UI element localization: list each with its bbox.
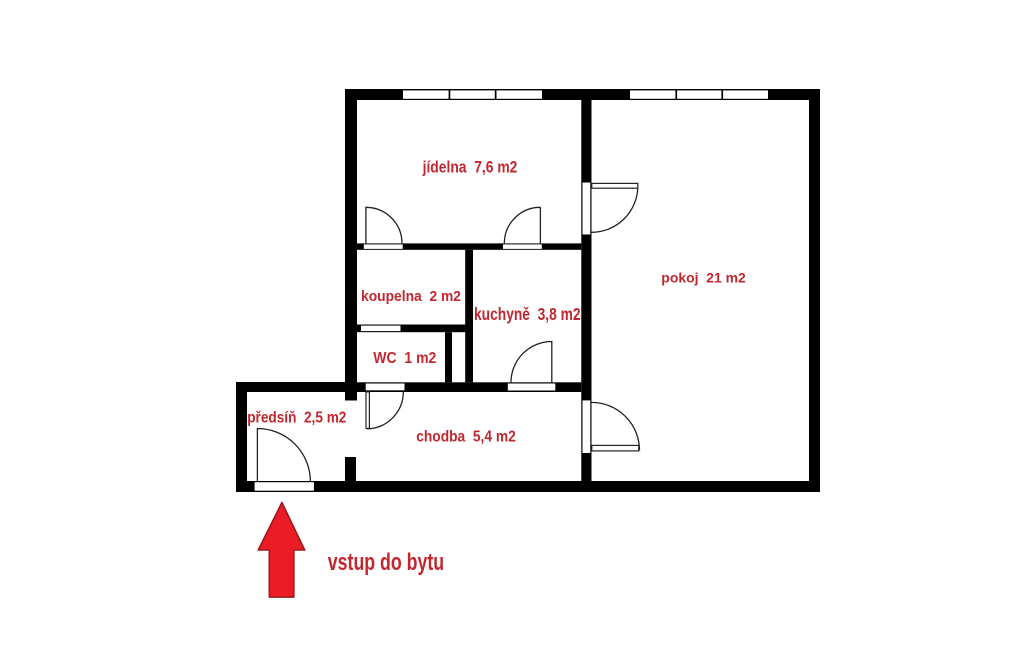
svg-text:koupelna 2 m2: koupelna 2 m2 bbox=[361, 288, 461, 305]
svg-text:chodba 5,4 m2: chodba 5,4 m2 bbox=[416, 428, 516, 445]
svg-text:jídelna 7,6 m2: jídelna 7,6 m2 bbox=[422, 158, 518, 177]
svg-text:kuchyně 3,8 m2: kuchyně 3,8 m2 bbox=[474, 304, 581, 324]
svg-text:WC 1 m2: WC 1 m2 bbox=[373, 350, 436, 367]
svg-text:předsíň 2,5 m2: předsíň 2,5 m2 bbox=[247, 409, 346, 426]
svg-text:pokoj 21 m2: pokoj 21 m2 bbox=[661, 270, 746, 286]
svg-text:vstup do bytu: vstup do bytu bbox=[328, 549, 444, 576]
